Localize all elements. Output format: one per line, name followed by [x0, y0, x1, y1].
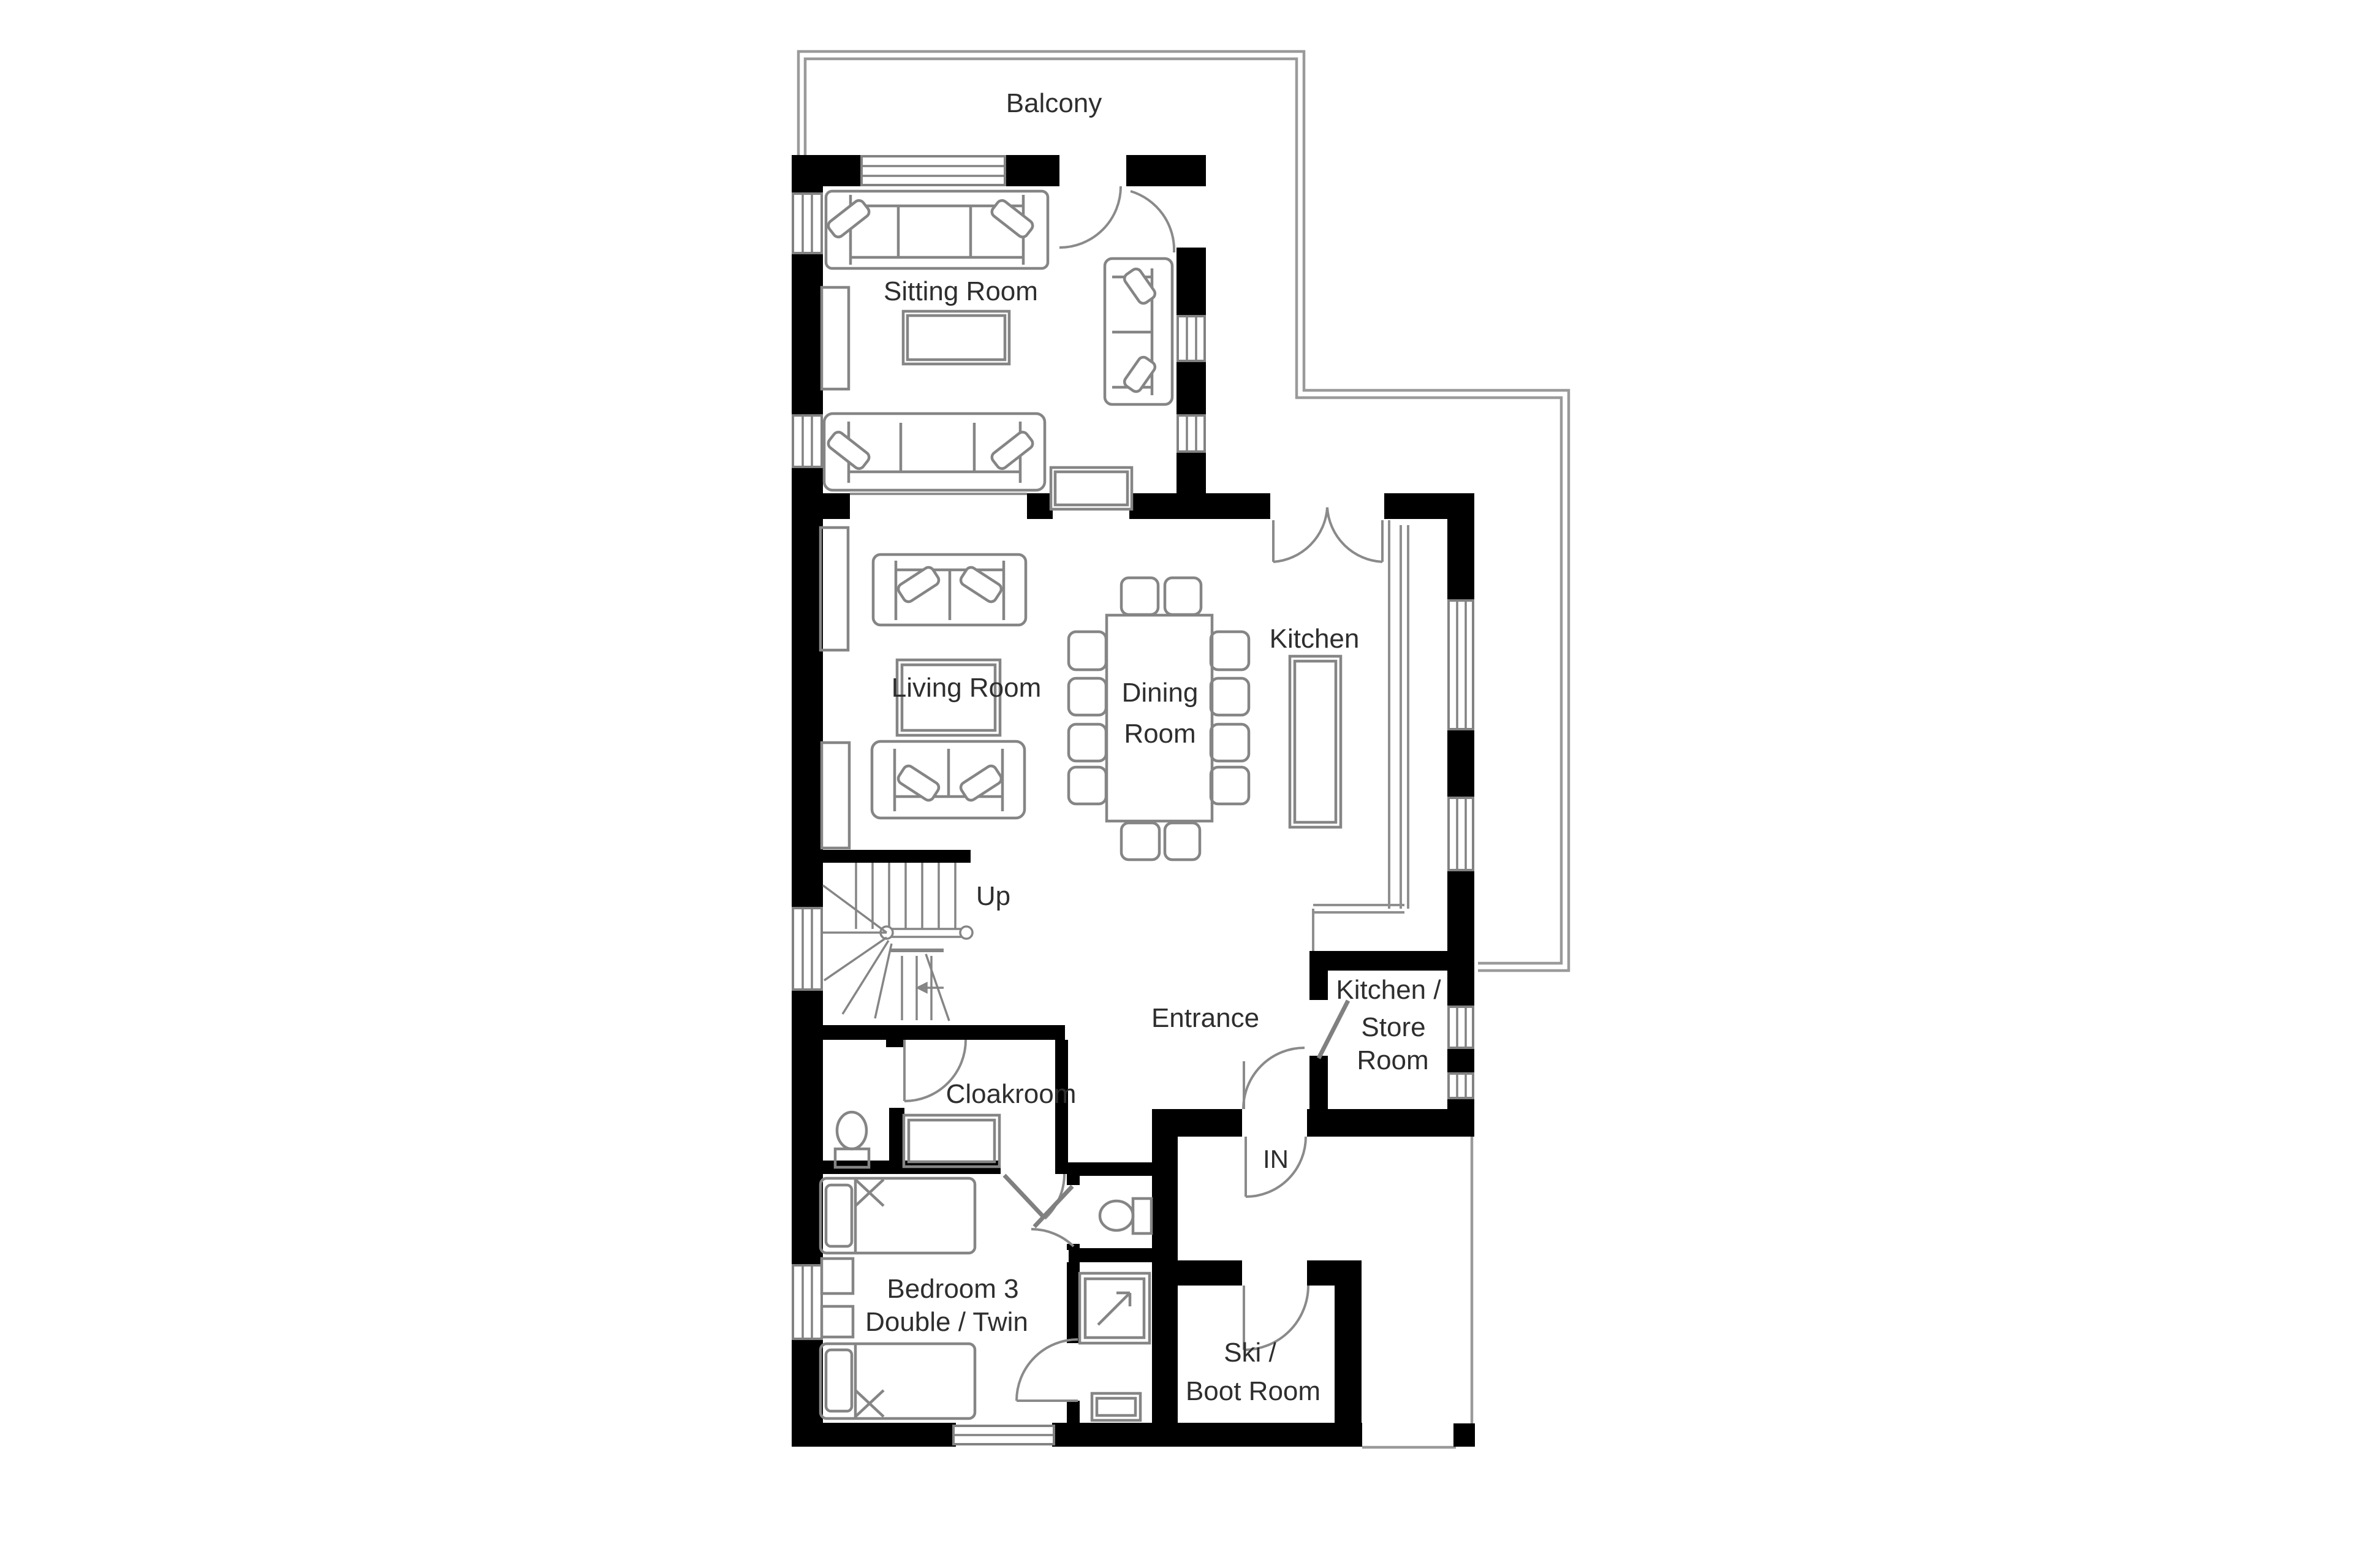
svg-text:Room: Room — [1357, 1045, 1428, 1075]
svg-text:Kitchen /: Kitchen / — [1336, 975, 1441, 1005]
svg-text:Sitting Room: Sitting Room — [884, 276, 1038, 306]
svg-text:Cloakroom: Cloakroom — [946, 1079, 1077, 1109]
svg-text:IN: IN — [1263, 1145, 1289, 1173]
svg-text:Dining: Dining — [1122, 678, 1199, 708]
svg-text:Up: Up — [976, 881, 1010, 911]
svg-text:Bedroom 3: Bedroom 3 — [887, 1274, 1018, 1304]
svg-text:Store: Store — [1361, 1012, 1425, 1042]
svg-text:Balcony: Balcony — [1006, 88, 1102, 118]
svg-text:Entrance: Entrance — [1151, 1003, 1259, 1033]
svg-text:Ski /: Ski / — [1224, 1338, 1276, 1368]
svg-text:Kitchen: Kitchen — [1270, 624, 1360, 654]
svg-text:Living Room: Living Room — [892, 673, 1042, 703]
svg-text:Boot Room: Boot Room — [1186, 1376, 1320, 1406]
svg-text:Double / Twin: Double / Twin — [865, 1307, 1028, 1337]
svg-text:Room: Room — [1124, 719, 1195, 749]
